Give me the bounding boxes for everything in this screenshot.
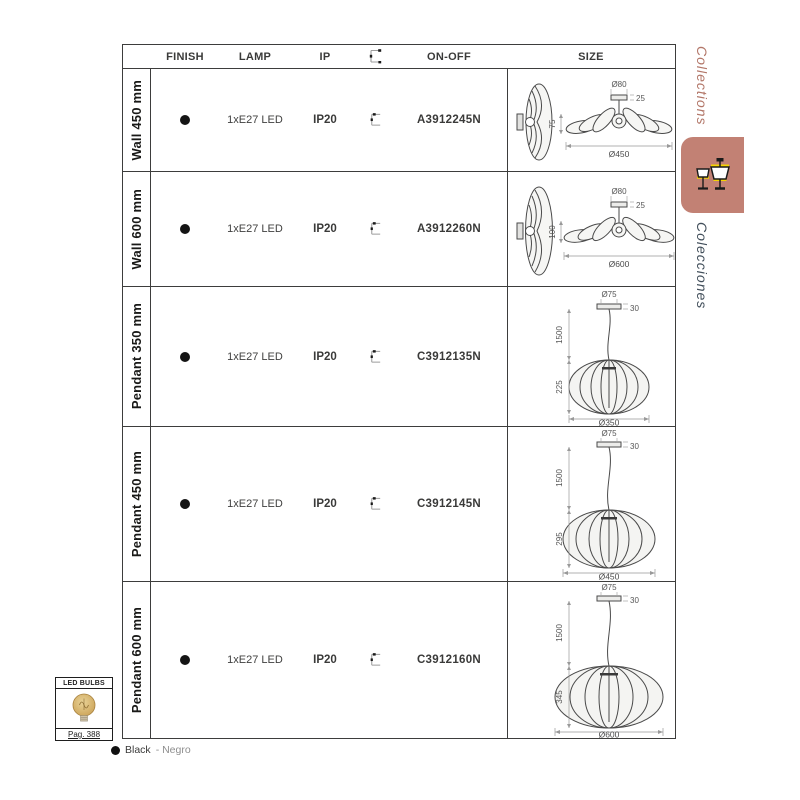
product-table: FINISH LAMP IP ON-OFF SIZE Wall 450 mm 1… — [122, 44, 676, 739]
side-label-collections: Collections — [694, 46, 710, 125]
dim-canopy-height: 30 — [630, 304, 639, 313]
finish-dot-black — [180, 655, 190, 665]
dim-canopy-diameter: Ø75 — [601, 583, 617, 592]
lamp-spec: 1xE27 LED — [219, 351, 291, 363]
dim-diameter: Ø350 — [598, 417, 619, 426]
ip-rating: IP20 — [291, 498, 359, 510]
size-drawing-wall-600: Ø80 25 100 — [507, 172, 675, 286]
finish-dot-black — [180, 352, 190, 362]
finish-dot-black — [180, 224, 190, 234]
product-code: A3912245N — [391, 114, 507, 126]
dim-canopy-height: 25 — [636, 201, 645, 210]
header-onoff: ON-OFF — [391, 51, 507, 63]
header-ip: IP — [291, 51, 359, 63]
ip-rating: IP20 — [291, 114, 359, 126]
product-code: C3912145N — [391, 498, 507, 510]
table-row: Wall 600 mm 1xE27 LED IP20 A3912260N — [123, 171, 675, 286]
row-label: Pendant 350 mm — [129, 303, 144, 409]
led-bulbs-box[interactable]: LED BULBS Pag. 388 — [55, 677, 113, 741]
dim-diameter: Ø600 — [598, 730, 619, 739]
dim-diameter: Ø600 — [608, 259, 629, 269]
dim-body-height: 100 — [548, 225, 557, 239]
legend-color-en: Black — [125, 744, 151, 756]
table-header-row: FINISH LAMP IP ON-OFF SIZE — [123, 45, 675, 69]
switch-icon — [359, 496, 391, 512]
product-code: C3912160N — [391, 654, 507, 666]
collections-tab[interactable] — [681, 137, 744, 213]
header-finish: FINISH — [151, 51, 219, 63]
dim-canopy-height: 30 — [630, 442, 639, 451]
table-row: Pendant 350 mm 1xE27 LED IP20 C3912135N … — [123, 286, 675, 426]
header-size: SIZE — [507, 51, 675, 63]
dim-canopy-diameter: Ø80 — [611, 80, 627, 89]
row-label: Pendant 450 mm — [129, 451, 144, 557]
ip-rating: IP20 — [291, 351, 359, 363]
lamp-spec: 1xE27 LED — [219, 654, 291, 666]
switch-icon — [359, 349, 391, 365]
lamp-spec: 1xE27 LED — [219, 223, 291, 235]
row-label: Wall 450 mm — [129, 80, 144, 160]
dim-canopy-height: 30 — [630, 596, 639, 605]
ip-rating: IP20 — [291, 654, 359, 666]
dim-shade-height: 225 — [555, 379, 564, 393]
header-lamp: LAMP — [219, 51, 291, 63]
table-row: Pendant 450 mm 1xE27 LED IP20 C3912145N … — [123, 426, 675, 581]
dim-canopy-diameter: Ø75 — [601, 429, 617, 438]
dim-drop: 1500 — [555, 469, 564, 487]
switch-icon — [359, 48, 391, 65]
size-drawing-pendant-350: Ø75 30 1500 — [507, 287, 675, 426]
dim-drop: 1500 — [555, 325, 564, 343]
switch-icon — [359, 221, 391, 237]
size-drawing-pendant-450: Ø75 30 1500 — [507, 427, 675, 581]
dim-shade-height: 345 — [555, 690, 564, 704]
lamps-icon — [694, 157, 732, 193]
switch-icon — [359, 652, 391, 668]
size-drawing-pendant-600: Ø75 30 1500 — [507, 582, 675, 738]
legend-color-es: - Negro — [156, 744, 191, 756]
lamp-spec: 1xE27 LED — [219, 114, 291, 126]
dim-canopy-height: 25 — [636, 94, 645, 103]
led-bulbs-page-ref: Pag. 388 — [56, 728, 112, 740]
product-code: A3912260N — [391, 223, 507, 235]
size-drawing-wall-450: Ø80 25 — [507, 69, 675, 171]
dim-drop: 1500 — [555, 624, 564, 642]
row-label: Wall 600 mm — [129, 189, 144, 269]
finish-dot-black — [180, 499, 190, 509]
dim-body-height: 75 — [548, 119, 557, 128]
row-label: Pendant 600 mm — [129, 607, 144, 713]
product-code: C3912135N — [391, 351, 507, 363]
table-row: Wall 450 mm 1xE27 LED IP20 A3912245N — [123, 69, 675, 171]
dim-canopy-diameter: Ø75 — [601, 290, 617, 299]
dim-diameter: Ø450 — [608, 149, 629, 159]
lamp-spec: 1xE27 LED — [219, 498, 291, 510]
side-label-colecciones: Colecciones — [694, 222, 710, 309]
dim-diameter: Ø450 — [598, 572, 619, 581]
legend-black-dot — [111, 746, 120, 755]
finish-legend: Black - Negro — [111, 744, 191, 756]
finish-dot-black — [180, 115, 190, 125]
led-bulb-icon — [64, 692, 104, 725]
switch-icon — [359, 112, 391, 128]
led-bulbs-title: LED BULBS — [56, 678, 112, 689]
ip-rating: IP20 — [291, 223, 359, 235]
table-row: Pendant 600 mm 1xE27 LED IP20 C3912160N … — [123, 581, 675, 738]
dim-shade-height: 295 — [555, 532, 564, 546]
dim-canopy-diameter: Ø80 — [611, 187, 627, 196]
